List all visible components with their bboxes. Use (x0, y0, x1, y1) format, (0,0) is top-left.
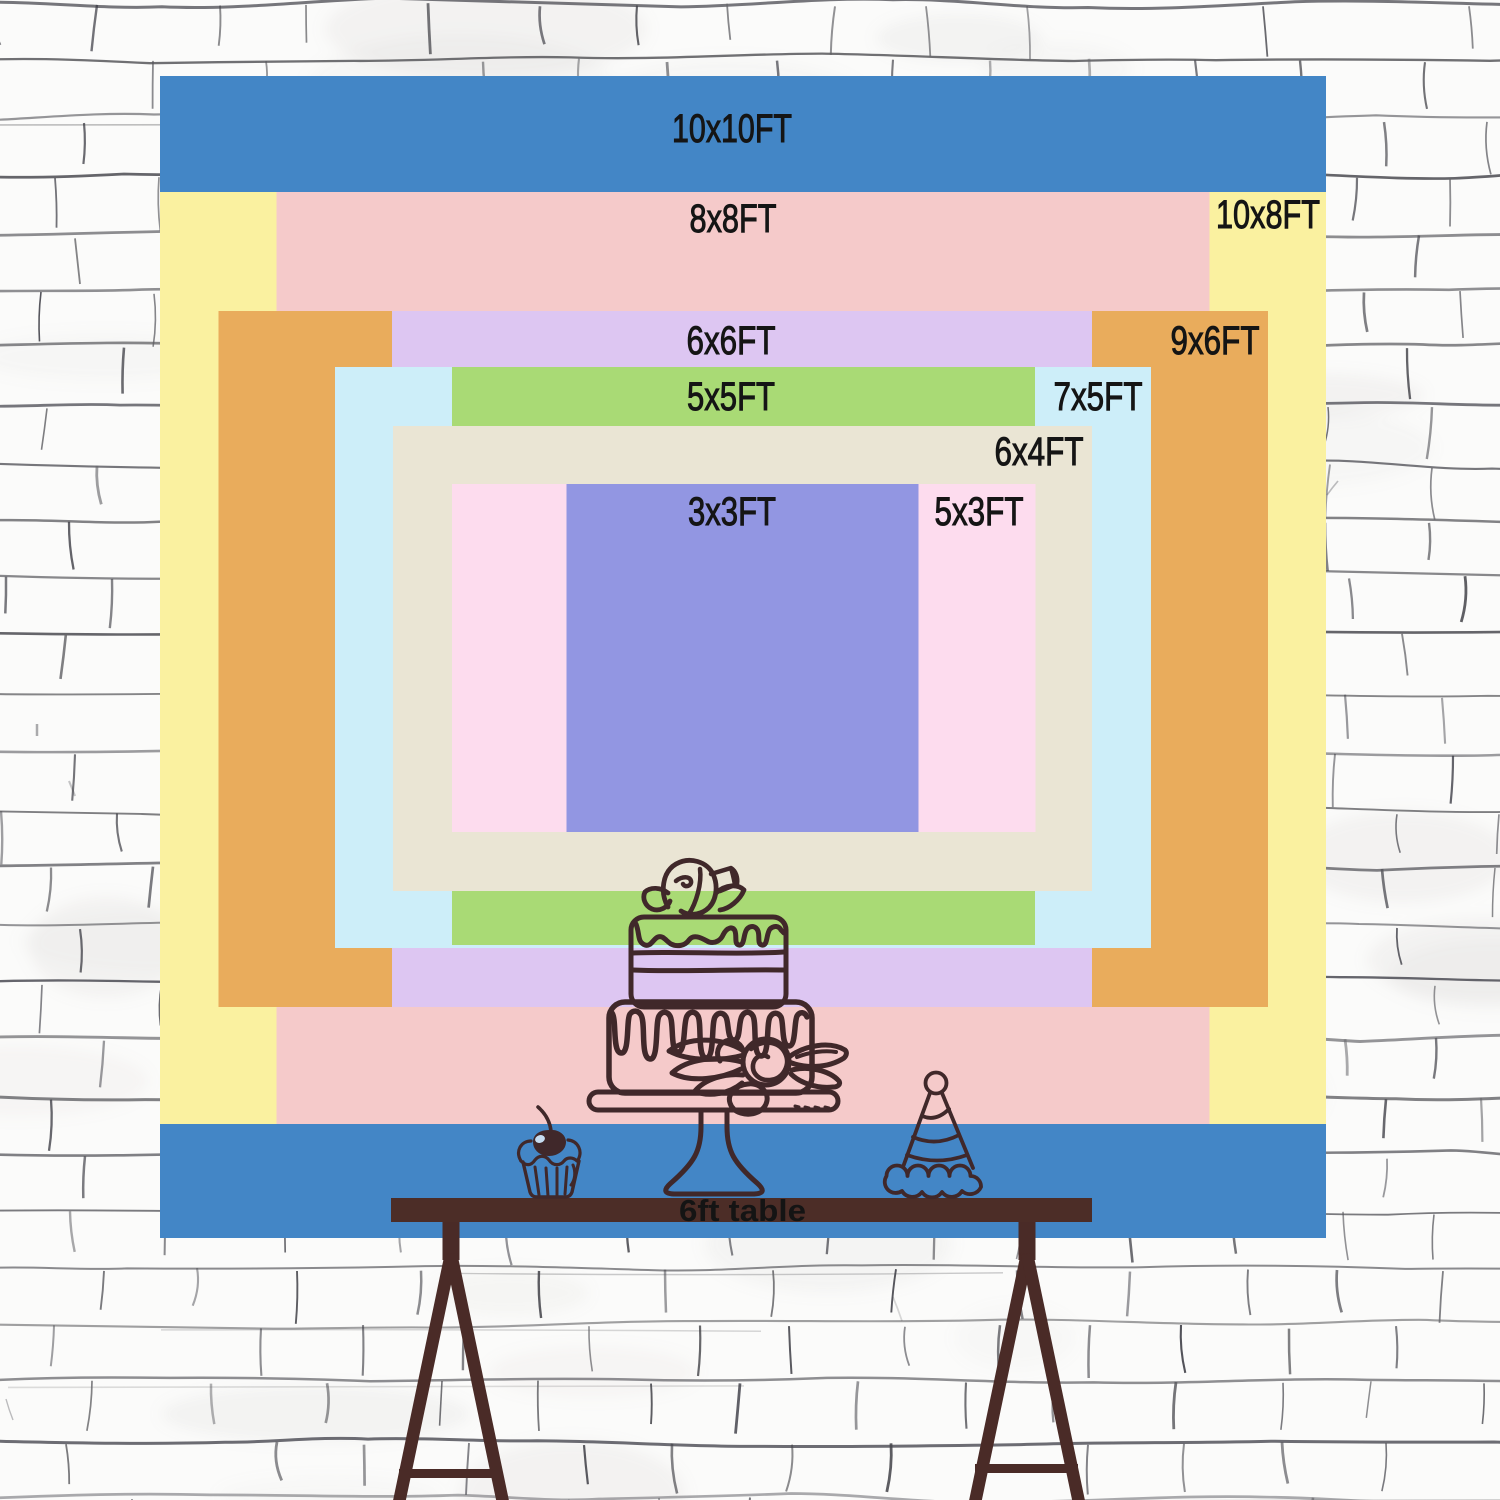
svg-text:6ft table: 6ft table (679, 1193, 806, 1228)
svg-text:7x5FT: 7x5FT (1054, 375, 1143, 419)
svg-text:5x5FT: 5x5FT (687, 375, 775, 419)
svg-text:6x6FT: 6x6FT (687, 319, 776, 363)
svg-text:5x3FT: 5x3FT (935, 490, 1024, 534)
svg-text:9x6FT: 9x6FT (1171, 319, 1260, 363)
svg-text:8x8FT: 8x8FT (690, 197, 777, 241)
svg-text:10x10FT: 10x10FT (672, 107, 792, 151)
svg-text:6x4FT: 6x4FT (995, 430, 1084, 474)
svg-text:3x3FT: 3x3FT (688, 490, 776, 534)
svg-text:10x8FT: 10x8FT (1216, 193, 1320, 237)
